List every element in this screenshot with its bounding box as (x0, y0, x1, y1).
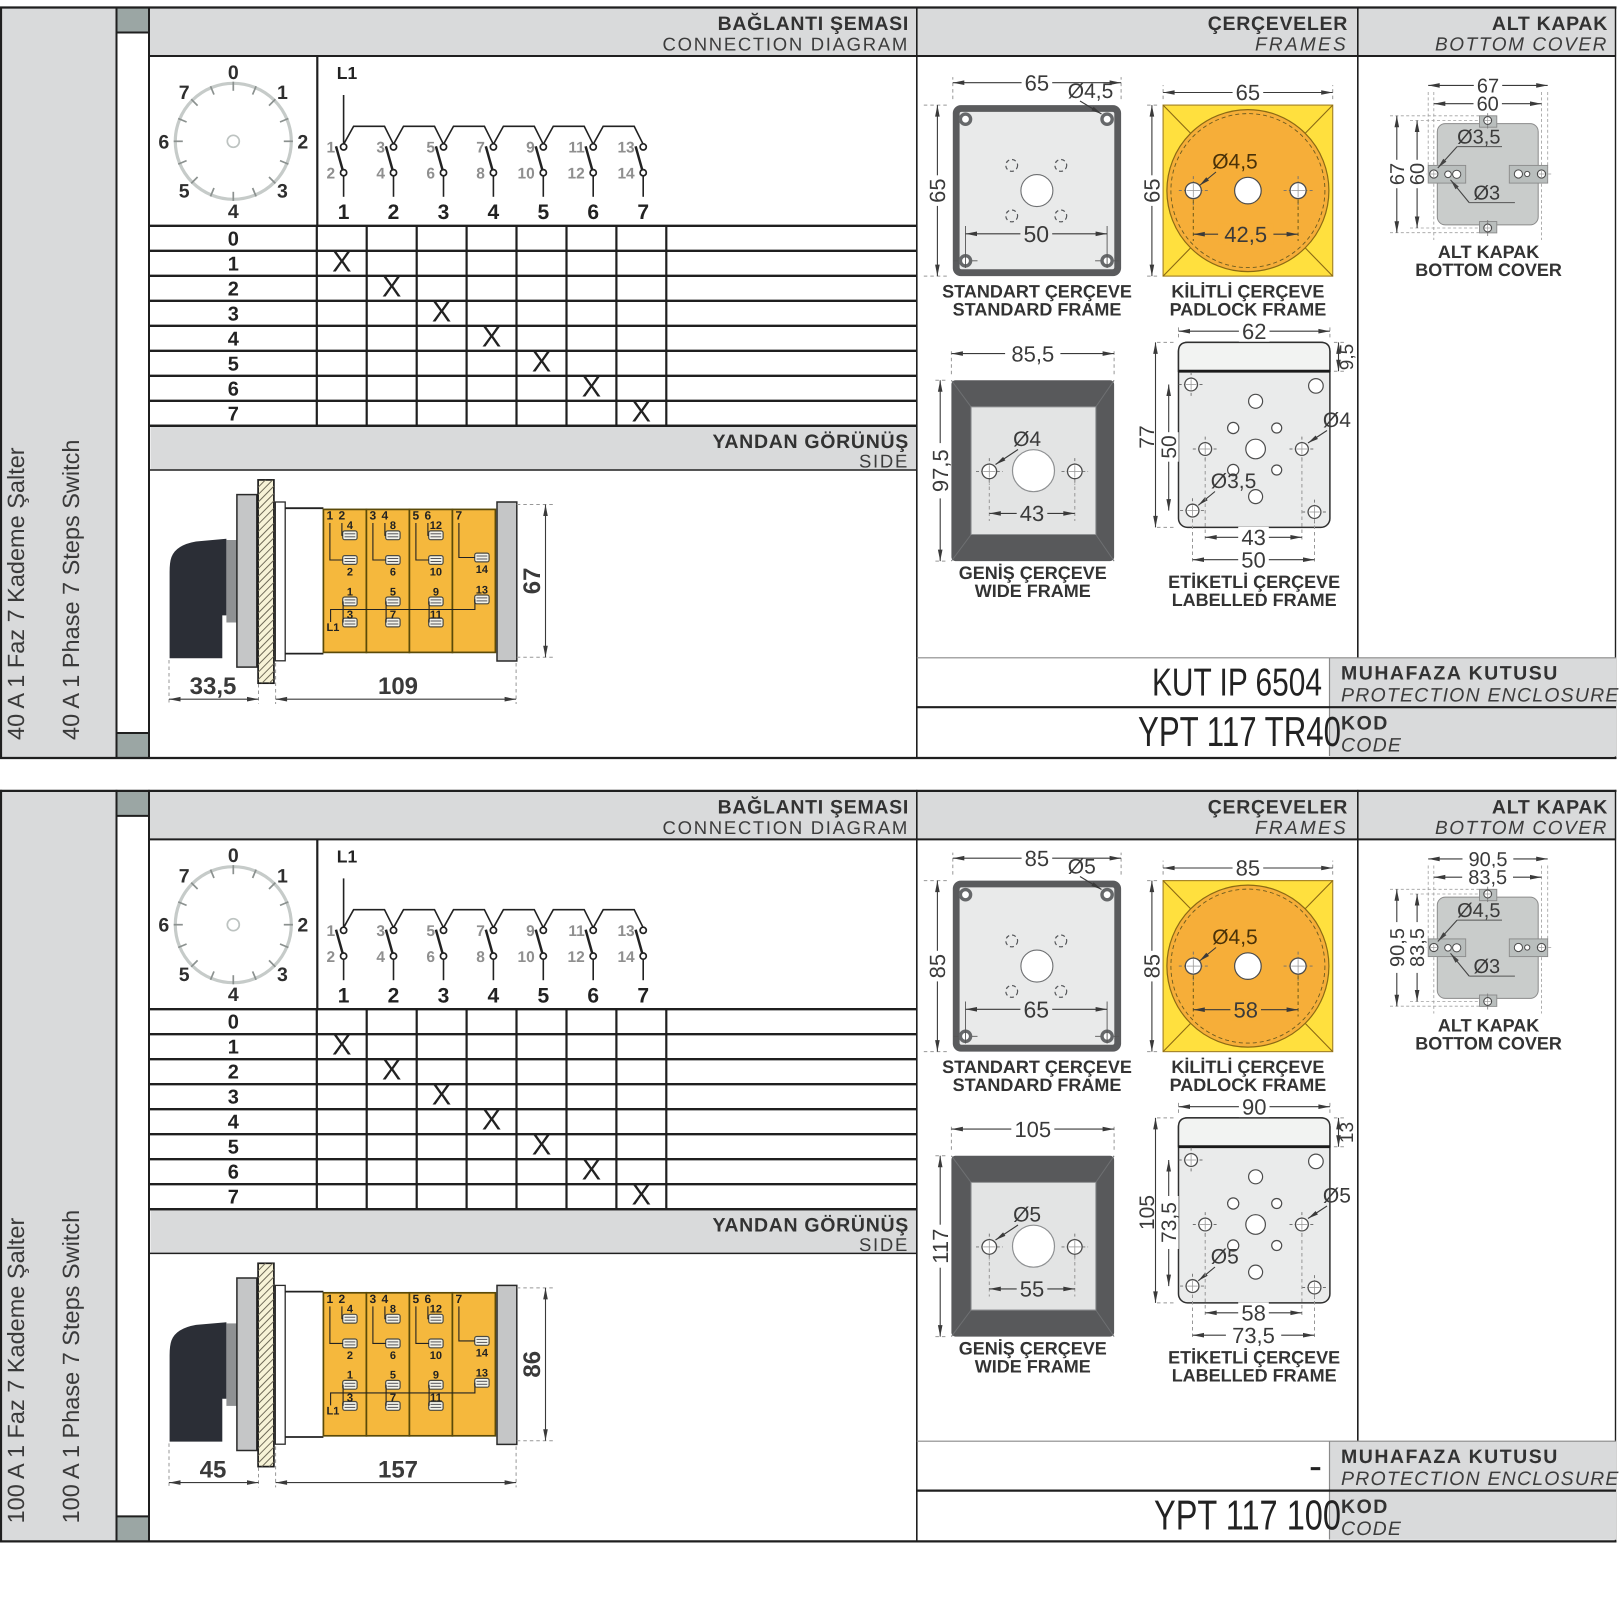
svg-text:1: 1 (277, 866, 288, 888)
svg-text:6: 6 (158, 915, 169, 937)
svg-text:2: 2 (388, 201, 400, 224)
svg-text:3: 3 (438, 201, 450, 224)
svg-text:5: 5 (537, 201, 549, 224)
svg-text:12: 12 (568, 949, 585, 966)
svg-text:2: 2 (388, 984, 400, 1007)
svg-text:KOD: KOD (1341, 713, 1389, 735)
svg-text:85: 85 (1025, 846, 1049, 871)
svg-text:CODE: CODE (1341, 1518, 1402, 1540)
svg-text:14: 14 (476, 564, 489, 576)
svg-text:6: 6 (587, 201, 599, 224)
svg-text:STANDARD FRAME: STANDARD FRAME (953, 1075, 1122, 1095)
svg-text:8: 8 (390, 1304, 396, 1316)
svg-text:13: 13 (617, 923, 635, 940)
svg-text:Ø3,5: Ø3,5 (1211, 470, 1257, 493)
svg-text:6: 6 (390, 1350, 396, 1362)
svg-text:CODE: CODE (1341, 735, 1402, 757)
svg-text:1: 1 (277, 82, 288, 104)
svg-text:105: 105 (1136, 1195, 1159, 1230)
svg-text:LABELLED FRAME: LABELLED FRAME (1172, 1366, 1337, 1386)
svg-text:10: 10 (430, 1350, 442, 1362)
svg-text:90: 90 (1242, 1094, 1266, 1119)
svg-text:7: 7 (476, 923, 485, 940)
svg-text:GENİŞ ÇERÇEVE: GENİŞ ÇERÇEVE (959, 1339, 1107, 1359)
svg-text:Ø4: Ø4 (1323, 409, 1351, 432)
svg-text:BAĞLANTI ŞEMASI: BAĞLANTI ŞEMASI (718, 12, 909, 35)
svg-text:2: 2 (339, 509, 346, 523)
svg-text:42,5: 42,5 (1224, 222, 1267, 247)
svg-text:PROTECTION ENCLOSURE: PROTECTION ENCLOSURE (1341, 685, 1620, 707)
svg-text:-: - (1309, 1445, 1322, 1488)
svg-text:11: 11 (430, 1393, 443, 1405)
svg-text:4: 4 (228, 328, 240, 350)
svg-text:Ø4,5: Ø4,5 (1457, 900, 1500, 922)
svg-text:Ø5: Ø5 (1068, 856, 1096, 879)
svg-text:MUHAFAZA KUTUSU: MUHAFAZA KUTUSU (1341, 663, 1559, 685)
svg-text:Ø5: Ø5 (1323, 1185, 1351, 1208)
svg-text:100 A 1 Phase 7 Steps Switch: 100 A 1 Phase 7 Steps Switch (58, 1210, 84, 1524)
svg-text:5: 5 (228, 353, 239, 375)
svg-text:4: 4 (228, 201, 239, 223)
svg-text:7: 7 (390, 609, 396, 621)
svg-text:4: 4 (347, 1304, 354, 1316)
svg-text:KİLİTLİ ÇERÇEVE: KİLİTLİ ÇERÇEVE (1171, 282, 1324, 302)
svg-text:73,5: 73,5 (1232, 1323, 1275, 1348)
svg-text:33,5: 33,5 (190, 673, 237, 700)
svg-text:6: 6 (390, 567, 396, 579)
svg-text:7: 7 (476, 140, 485, 157)
svg-text:L1: L1 (327, 622, 340, 634)
svg-text:55: 55 (1020, 1277, 1044, 1302)
svg-text:8: 8 (476, 166, 485, 183)
svg-text:58: 58 (1233, 997, 1257, 1022)
svg-text:WIDE FRAME: WIDE FRAME (975, 581, 1091, 601)
svg-text:11: 11 (568, 923, 585, 940)
svg-text:X: X (382, 1055, 401, 1087)
svg-text:7: 7 (456, 509, 463, 523)
svg-text:3: 3 (228, 303, 239, 325)
svg-text:3: 3 (376, 923, 385, 940)
svg-text:40 A 1 Faz 7 Kademe Şalter: 40 A 1 Faz 7 Kademe Şalter (3, 447, 29, 740)
svg-text:83,5: 83,5 (1407, 928, 1429, 967)
svg-text:X: X (582, 371, 601, 403)
svg-text:9: 9 (526, 923, 535, 940)
svg-text:65: 65 (1236, 80, 1260, 105)
svg-text:ETİKETLİ ÇERÇEVE: ETİKETLİ ÇERÇEVE (1168, 572, 1340, 592)
svg-text:1: 1 (347, 586, 353, 598)
svg-text:X: X (432, 1080, 451, 1112)
svg-text:FRAMES: FRAMES (1255, 35, 1348, 56)
svg-text:14: 14 (476, 1347, 489, 1359)
svg-text:X: X (432, 296, 451, 328)
svg-text:Ø4: Ø4 (1013, 428, 1041, 451)
svg-text:2: 2 (326, 949, 335, 966)
svg-text:4: 4 (376, 949, 385, 966)
svg-text:5: 5 (179, 964, 190, 986)
svg-text:BOTTOM COVER: BOTTOM COVER (1415, 260, 1562, 280)
svg-text:43: 43 (1241, 525, 1265, 550)
svg-text:65: 65 (1025, 70, 1049, 95)
svg-text:8: 8 (390, 520, 396, 532)
svg-text:97,5: 97,5 (928, 449, 953, 492)
svg-text:6: 6 (228, 378, 239, 400)
svg-text:13: 13 (617, 140, 635, 157)
svg-text:3: 3 (438, 984, 450, 1007)
svg-text:X: X (332, 1030, 351, 1062)
svg-text:2: 2 (297, 915, 308, 937)
svg-text:L1: L1 (337, 846, 358, 866)
svg-text:6: 6 (426, 166, 435, 183)
svg-text:Ø3: Ø3 (1474, 956, 1501, 978)
svg-text:60: 60 (1407, 163, 1429, 185)
svg-text:X: X (382, 271, 401, 303)
svg-text:X: X (482, 1105, 501, 1137)
svg-text:1: 1 (338, 984, 350, 1007)
svg-text:90,5: 90,5 (1387, 928, 1409, 967)
svg-text:3: 3 (370, 509, 377, 523)
svg-text:X: X (532, 1130, 551, 1162)
svg-text:5: 5 (390, 586, 396, 598)
svg-text:FRAMES: FRAMES (1255, 818, 1348, 839)
svg-text:YPT 117 TR40: YPT 117 TR40 (1138, 708, 1341, 755)
svg-text:ETİKETLİ ÇERÇEVE: ETİKETLİ ÇERÇEVE (1168, 1348, 1340, 1368)
svg-text:2: 2 (347, 567, 353, 579)
svg-text:ALT KAPAK: ALT KAPAK (1492, 13, 1608, 35)
svg-text:6: 6 (425, 1292, 432, 1306)
svg-text:LABELLED FRAME: LABELLED FRAME (1172, 590, 1337, 610)
svg-text:13: 13 (476, 584, 488, 596)
svg-text:4: 4 (488, 984, 500, 1007)
svg-text:1: 1 (338, 201, 350, 224)
svg-text:45: 45 (200, 1456, 227, 1483)
svg-text:3: 3 (277, 964, 288, 986)
svg-text:85: 85 (1140, 954, 1165, 978)
svg-text:YPT 117 100: YPT 117 100 (1154, 1491, 1341, 1538)
svg-text:GENİŞ ÇERÇEVE: GENİŞ ÇERÇEVE (959, 563, 1107, 583)
svg-text:3: 3 (347, 609, 353, 621)
svg-text:4: 4 (382, 1292, 389, 1306)
svg-text:4: 4 (347, 520, 354, 532)
svg-text:86: 86 (519, 1351, 546, 1378)
svg-text:X: X (332, 246, 351, 278)
svg-text:7: 7 (179, 82, 190, 104)
svg-text:1: 1 (326, 923, 335, 940)
svg-text:11: 11 (430, 609, 443, 621)
svg-text:ÇERÇEVELER: ÇERÇEVELER (1208, 796, 1348, 818)
svg-text:Ø5: Ø5 (1013, 1204, 1041, 1227)
svg-text:4: 4 (376, 166, 385, 183)
svg-text:5: 5 (426, 923, 435, 940)
svg-text:10: 10 (518, 949, 535, 966)
svg-text:6: 6 (426, 949, 435, 966)
svg-text:2: 2 (297, 131, 308, 153)
svg-text:8: 8 (476, 949, 485, 966)
svg-text:67: 67 (519, 568, 546, 595)
svg-text:PADLOCK FRAME: PADLOCK FRAME (1170, 300, 1327, 320)
svg-text:50: 50 (1024, 221, 1050, 247)
svg-text:2: 2 (339, 1292, 346, 1306)
svg-text:85: 85 (1236, 856, 1260, 881)
svg-text:7: 7 (637, 201, 649, 224)
svg-text:2: 2 (347, 1350, 353, 1362)
svg-text:9,5: 9,5 (1337, 344, 1358, 370)
svg-text:50: 50 (1241, 547, 1265, 572)
svg-text:3: 3 (370, 1292, 377, 1306)
svg-text:105: 105 (1014, 1117, 1051, 1142)
svg-text:KUT IP 6504: KUT IP 6504 (1152, 662, 1322, 705)
svg-text:L1: L1 (327, 1405, 340, 1417)
svg-text:BOTTOM COVER: BOTTOM COVER (1435, 35, 1608, 56)
svg-text:10: 10 (430, 567, 442, 579)
svg-text:KİLİTLİ ÇERÇEVE: KİLİTLİ ÇERÇEVE (1171, 1057, 1324, 1077)
svg-text:1: 1 (347, 1370, 353, 1382)
svg-text:ÇERÇEVELER: ÇERÇEVELER (1208, 13, 1348, 35)
svg-text:STANDART ÇERÇEVE: STANDART ÇERÇEVE (942, 282, 1132, 302)
svg-text:100 A 1 Faz 7 Kademe Şalter: 100 A 1 Faz 7 Kademe Şalter (3, 1218, 29, 1524)
svg-text:58: 58 (1241, 1301, 1265, 1326)
svg-text:SIDE: SIDE (859, 451, 909, 472)
svg-text:77: 77 (1136, 425, 1159, 448)
svg-text:CONNECTION DIAGRAM: CONNECTION DIAGRAM (663, 817, 909, 838)
svg-text:3: 3 (228, 1087, 239, 1109)
svg-text:4: 4 (488, 201, 500, 224)
svg-text:14: 14 (617, 166, 635, 183)
svg-text:62: 62 (1242, 319, 1266, 344)
svg-text:7: 7 (456, 1292, 463, 1306)
svg-text:9: 9 (433, 586, 439, 598)
svg-text:ALT KAPAK: ALT KAPAK (1492, 796, 1608, 818)
svg-text:Ø3: Ø3 (1474, 183, 1501, 205)
svg-text:KOD: KOD (1341, 1496, 1389, 1518)
svg-text:6: 6 (228, 1162, 239, 1184)
svg-text:X: X (632, 1180, 651, 1212)
svg-text:5: 5 (413, 1292, 420, 1306)
svg-text:5: 5 (537, 984, 549, 1007)
svg-text:BAĞLANTI ŞEMASI: BAĞLANTI ŞEMASI (718, 795, 909, 818)
svg-text:13: 13 (476, 1368, 488, 1380)
svg-text:67: 67 (1387, 163, 1409, 185)
svg-text:5: 5 (413, 509, 420, 523)
svg-text:Ø4,5: Ø4,5 (1212, 151, 1258, 174)
svg-text:2: 2 (326, 166, 335, 183)
svg-text:3: 3 (376, 140, 385, 157)
svg-text:60: 60 (1477, 94, 1499, 116)
svg-text:WIDE FRAME: WIDE FRAME (975, 1357, 1091, 1377)
svg-text:5: 5 (179, 180, 190, 202)
svg-text:Ø4,5: Ø4,5 (1068, 80, 1114, 103)
svg-text:Ø3,5: Ø3,5 (1457, 127, 1500, 149)
svg-text:6: 6 (587, 984, 599, 1007)
svg-text:14: 14 (617, 949, 635, 966)
svg-text:12: 12 (568, 166, 585, 183)
svg-text:Ø5: Ø5 (1211, 1246, 1239, 1269)
svg-text:157: 157 (378, 1456, 418, 1483)
svg-text:4: 4 (228, 1112, 240, 1134)
svg-text:2: 2 (228, 1062, 239, 1084)
svg-text:117: 117 (928, 1229, 953, 1264)
svg-text:0: 0 (228, 62, 239, 84)
svg-text:BOTTOM COVER: BOTTOM COVER (1415, 1034, 1562, 1054)
svg-text:10: 10 (518, 166, 535, 183)
svg-text:L1: L1 (337, 63, 358, 83)
svg-text:50: 50 (1158, 435, 1181, 458)
svg-text:Ø4,5: Ø4,5 (1212, 926, 1258, 949)
svg-text:0: 0 (228, 1012, 239, 1034)
svg-text:4: 4 (228, 984, 239, 1006)
svg-text:ALT KAPAK: ALT KAPAK (1438, 1016, 1539, 1036)
svg-text:3: 3 (277, 180, 288, 202)
svg-text:85: 85 (925, 954, 950, 978)
svg-text:ALT KAPAK: ALT KAPAK (1438, 242, 1539, 262)
svg-text:109: 109 (378, 673, 418, 700)
svg-text:7: 7 (228, 1187, 239, 1209)
svg-text:PROTECTION ENCLOSURE: PROTECTION ENCLOSURE (1341, 1468, 1620, 1490)
svg-text:6: 6 (158, 131, 169, 153)
svg-text:3: 3 (347, 1393, 353, 1405)
svg-text:4: 4 (382, 509, 389, 523)
svg-text:X: X (632, 396, 651, 428)
svg-text:65: 65 (1024, 996, 1050, 1022)
svg-text:83,5: 83,5 (1468, 867, 1507, 889)
svg-text:1: 1 (327, 1292, 334, 1306)
svg-text:STANDARD FRAME: STANDARD FRAME (953, 300, 1122, 320)
svg-text:1: 1 (326, 140, 335, 157)
svg-text:1: 1 (327, 509, 334, 523)
svg-text:CONNECTION DIAGRAM: CONNECTION DIAGRAM (663, 34, 909, 55)
svg-text:1: 1 (228, 253, 239, 275)
svg-text:1: 1 (228, 1037, 239, 1059)
svg-text:5: 5 (228, 1137, 239, 1159)
svg-text:2: 2 (228, 278, 239, 300)
svg-text:6: 6 (425, 509, 432, 523)
svg-text:9: 9 (433, 1370, 439, 1382)
svg-text:11: 11 (568, 140, 585, 157)
svg-text:12: 12 (430, 520, 442, 532)
svg-text:7: 7 (390, 1393, 396, 1405)
svg-text:PADLOCK FRAME: PADLOCK FRAME (1170, 1075, 1327, 1095)
svg-text:13: 13 (1337, 1122, 1358, 1143)
svg-text:73,5: 73,5 (1158, 1202, 1181, 1243)
svg-text:X: X (482, 321, 501, 353)
svg-text:X: X (532, 346, 551, 378)
svg-text:12: 12 (430, 1304, 442, 1316)
svg-text:65: 65 (925, 178, 950, 202)
svg-text:65: 65 (1140, 178, 1165, 202)
svg-text:9: 9 (526, 140, 535, 157)
svg-text:43: 43 (1020, 501, 1044, 526)
svg-text:BOTTOM COVER: BOTTOM COVER (1435, 818, 1608, 839)
svg-text:7: 7 (228, 403, 239, 425)
svg-text:5: 5 (426, 140, 435, 157)
svg-text:7: 7 (179, 866, 190, 888)
svg-text:SIDE: SIDE (859, 1234, 909, 1255)
svg-text:0: 0 (228, 845, 239, 867)
svg-text:STANDART ÇERÇEVE: STANDART ÇERÇEVE (942, 1057, 1132, 1077)
svg-text:X: X (582, 1155, 601, 1187)
svg-text:7: 7 (637, 984, 649, 1007)
svg-text:MUHAFAZA KUTUSU: MUHAFAZA KUTUSU (1341, 1446, 1559, 1468)
svg-text:40 A 1 Phase 7 Steps Switch: 40 A 1 Phase 7 Steps Switch (58, 440, 84, 740)
svg-text:0: 0 (228, 228, 239, 250)
svg-text:85,5: 85,5 (1011, 341, 1054, 366)
svg-text:5: 5 (390, 1370, 396, 1382)
